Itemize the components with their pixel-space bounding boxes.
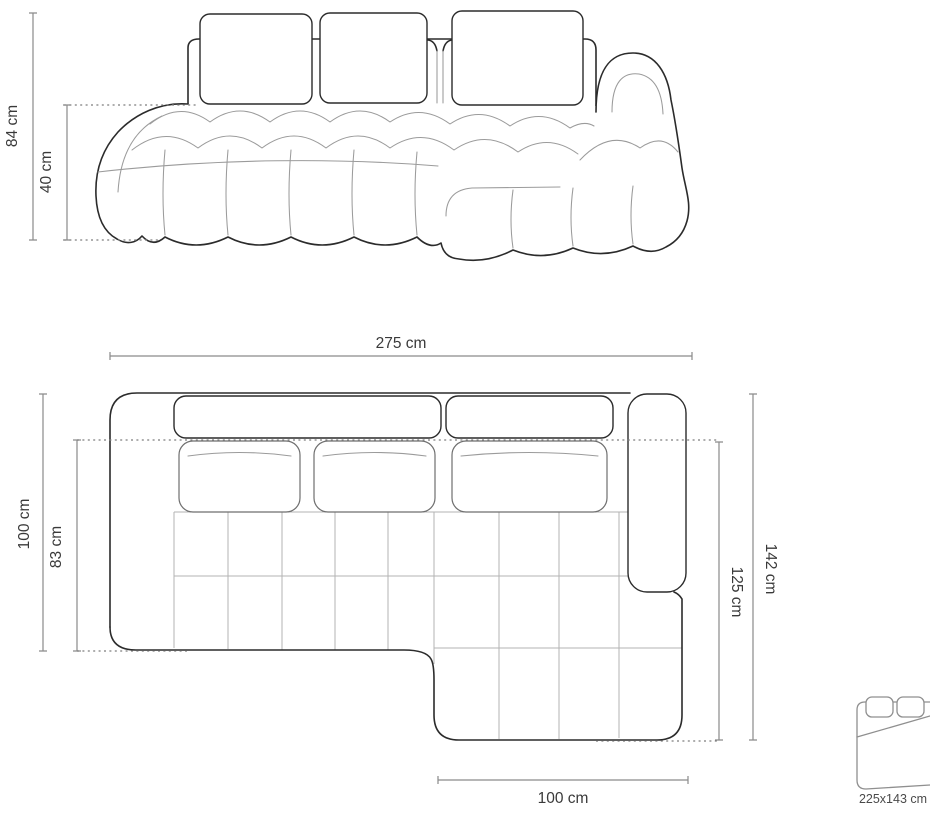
plan-seat-pillows: [179, 441, 607, 512]
left-depth-dimension-label: 100 cm: [16, 499, 33, 550]
seat-height-dimension-label: 40 cm: [38, 151, 55, 193]
plan-backrest-cushions: [174, 396, 613, 438]
front-view: 84 cm 40 cm: [4, 11, 689, 260]
width-dimension-label: 275 cm: [376, 335, 427, 352]
plan-backrest-cushion-right: [446, 396, 613, 438]
right-depth-dimension: 142 cm 125 cm: [715, 394, 779, 740]
sofa-bed-icon: [857, 697, 930, 789]
right-depth-total-label: 142 cm: [762, 544, 779, 595]
right-depth-inner-label: 125 cm: [728, 567, 745, 618]
sleeping-function: 225x143 cm: [857, 697, 930, 806]
sofa-dimensions-diagram: 84 cm 40 cm: [0, 0, 930, 820]
plan-stitch-grid: [174, 512, 683, 739]
plan-seat-pillow-right: [452, 441, 607, 512]
plan-seat-pillow-left: [179, 441, 300, 512]
back-pillow-middle: [320, 13, 427, 103]
back-pillow-right: [452, 11, 583, 105]
height-dimension: 84 cm: [4, 13, 37, 240]
left-seat-depth-dimension-label: 83 cm: [48, 526, 65, 568]
width-dimension: 275 cm: [110, 335, 692, 360]
plan-backrest-cushion-left: [174, 396, 441, 438]
back-pillow-left: [200, 14, 312, 104]
front-back-pillows: [200, 11, 583, 105]
diagram-svg: 84 cm 40 cm: [0, 0, 930, 820]
left-depth-dimension: 100 cm 83 cm: [16, 394, 81, 651]
plan-view: 275 cm 100 cm 83 cm 142 cm 125 cm 100 cm: [16, 335, 779, 807]
plan-armrest: [628, 394, 686, 592]
chaise-width-dimension: 100 cm: [438, 776, 688, 807]
plan-seat-pillow-middle: [314, 441, 435, 512]
height-dimension-label: 84 cm: [4, 105, 21, 147]
chaise-width-dimension-label: 100 cm: [538, 790, 589, 807]
bed-size-label: 225x143 cm: [859, 792, 927, 806]
